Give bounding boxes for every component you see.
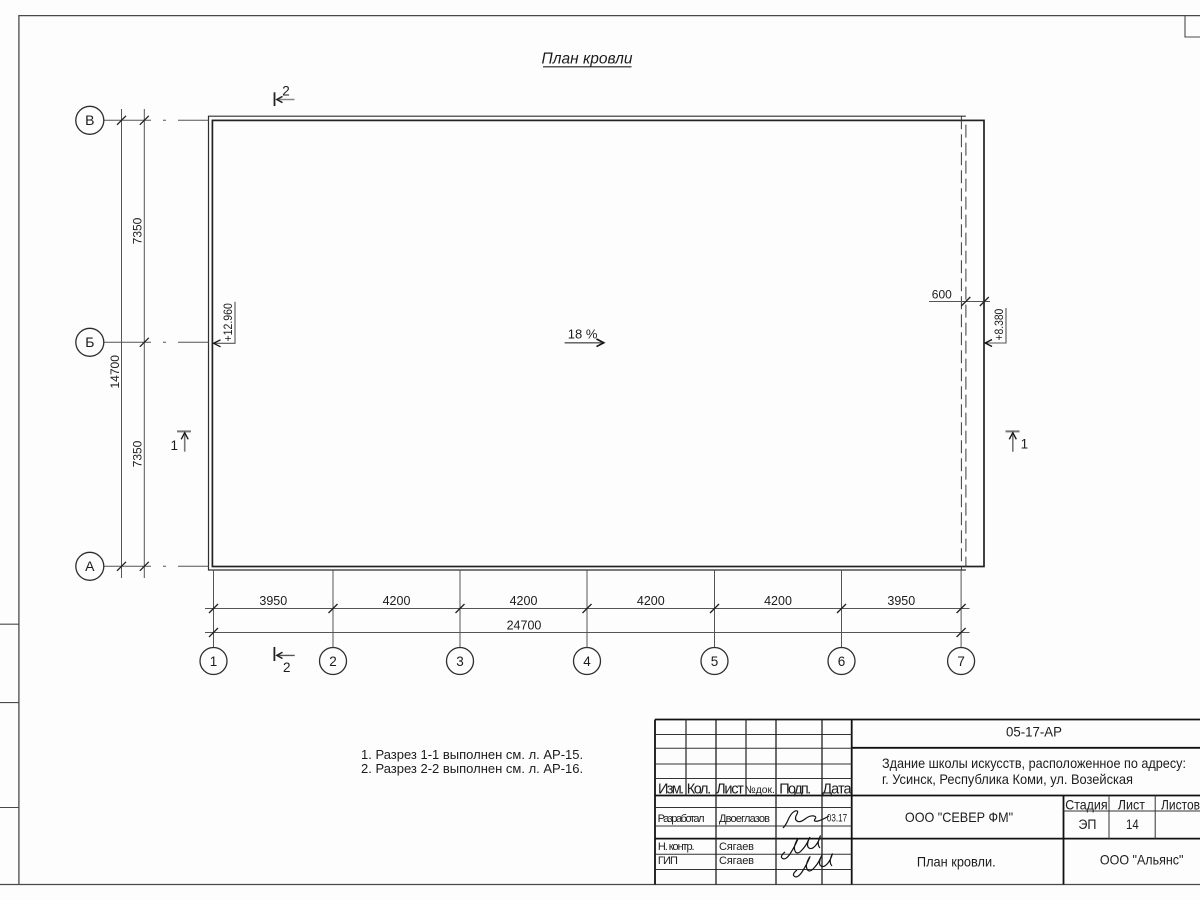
svg-text:План кровли: План кровли	[542, 51, 633, 68]
svg-text:В: В	[85, 112, 94, 128]
svg-text:4: 4	[583, 654, 591, 669]
svg-text:1: 1	[1021, 437, 1029, 452]
svg-text:Здание школы искусств, располо: Здание школы искусств, расположенное по …	[882, 755, 1186, 771]
svg-text:Разработал: Разработал	[658, 813, 705, 825]
svg-text:Изм.: Изм.	[658, 782, 684, 798]
svg-text:Кол.: Кол.	[687, 782, 711, 798]
svg-text:Дата: Дата	[822, 782, 852, 798]
svg-text:24700: 24700	[507, 619, 542, 633]
svg-text:Сягаев: Сягаев	[719, 841, 754, 853]
svg-text:3950: 3950	[887, 594, 915, 608]
svg-text:Б: Б	[85, 334, 94, 350]
svg-text:ГИП: ГИП	[658, 855, 678, 867]
svg-text:Лист: Лист	[716, 782, 744, 798]
svg-text:Подп.: Подп.	[779, 782, 811, 798]
svg-text:05-17-АР: 05-17-АР	[1006, 724, 1062, 739]
svg-text:14: 14	[1126, 817, 1139, 832]
svg-text:4200: 4200	[383, 594, 411, 608]
svg-text:2: 2	[329, 654, 337, 669]
svg-text:+12.960: +12.960	[221, 303, 235, 342]
svg-text:Сягаев: Сягаев	[719, 855, 754, 867]
svg-text:Листов: Листов	[1161, 796, 1200, 812]
svg-text:ЭП: ЭП	[1078, 817, 1096, 832]
svg-text:03.17: 03.17	[827, 813, 847, 825]
svg-text:№док.: №док.	[745, 784, 775, 796]
svg-text:2: 2	[283, 660, 291, 675]
svg-text:14700: 14700	[108, 355, 122, 389]
svg-text:600: 600	[932, 287, 952, 301]
svg-text:4200: 4200	[637, 594, 665, 608]
svg-text:Двоеглазов: Двоеглазов	[719, 813, 770, 825]
svg-text:18 %: 18 %	[568, 327, 598, 342]
svg-text:6: 6	[838, 654, 846, 669]
svg-text:Лист: Лист	[1118, 796, 1146, 812]
svg-text:5: 5	[711, 654, 719, 669]
svg-text:Стадия: Стадия	[1065, 796, 1107, 812]
svg-text:3: 3	[456, 654, 464, 669]
svg-text:7350: 7350	[131, 440, 145, 467]
svg-text:+8.380: +8.380	[992, 308, 1006, 340]
svg-text:1: 1	[171, 438, 179, 453]
svg-text:2. Разрез 2-2 выполнен см. л.: 2. Разрез 2-2 выполнен см. л. АР-16.	[361, 761, 583, 776]
svg-text:г. Усинск, Республика Коми, ул: г. Усинск, Республика Коми, ул. Возейска…	[882, 771, 1133, 787]
svg-text:ООО "Альянс": ООО "Альянс"	[1100, 852, 1184, 868]
svg-text:4200: 4200	[764, 594, 792, 608]
svg-text:План кровли.: План кровли.	[917, 854, 996, 870]
svg-text:Н. контр.: Н. контр.	[658, 841, 695, 853]
svg-text:7: 7	[957, 654, 965, 669]
svg-text:3950: 3950	[259, 594, 287, 608]
svg-text:4200: 4200	[510, 594, 538, 608]
svg-text:1: 1	[210, 654, 218, 669]
svg-text:7350: 7350	[131, 217, 145, 244]
svg-text:2: 2	[282, 84, 290, 99]
svg-text:А: А	[85, 558, 95, 574]
svg-text:ООО "СЕВЕР ФМ": ООО "СЕВЕР ФМ"	[905, 809, 1013, 825]
